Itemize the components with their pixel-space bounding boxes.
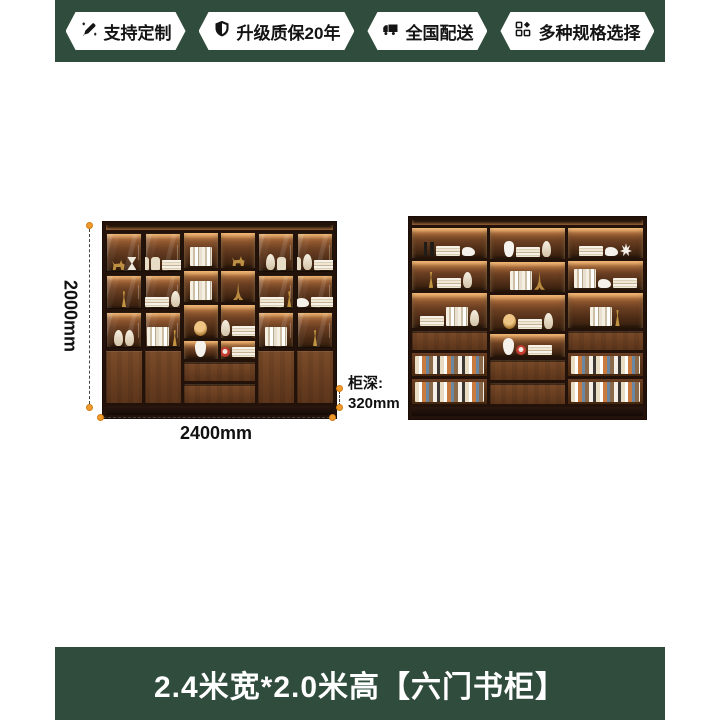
books-shelf-cell [412, 379, 487, 405]
vase-item [463, 272, 472, 288]
clock-item [516, 345, 526, 355]
trophy-item [312, 330, 319, 346]
vase-item [221, 320, 230, 336]
bird-item [462, 247, 475, 256]
canister-item [277, 257, 286, 270]
glass-door-cell [258, 233, 294, 272]
shelf-cell [568, 261, 643, 290]
books-shelf-cell [568, 379, 643, 405]
badge-label: 多种规格选择 [538, 19, 640, 44]
deer-item [231, 256, 245, 266]
bookcase-closed [106, 225, 333, 415]
clock-item [221, 347, 230, 357]
layout-box [145, 233, 181, 404]
canister-item [145, 257, 149, 270]
bird-item [605, 247, 618, 256]
vase-item [171, 291, 180, 307]
badge-warranty: 升级质保20年 [199, 12, 355, 50]
candle-item [424, 242, 434, 256]
top-light-strip [412, 220, 643, 225]
door-panel [297, 351, 333, 403]
vase-item [125, 330, 134, 346]
drawer-front [490, 360, 565, 380]
drawer-front [184, 362, 256, 381]
vbooks-item [590, 307, 612, 326]
height-dimension-label: 2000mm [60, 280, 81, 352]
glass-door-cell [106, 275, 142, 309]
badge-label: 升级质保20年 [237, 19, 341, 44]
glass-door-cell [145, 275, 181, 309]
shelf-cell [184, 305, 218, 338]
layout-box [490, 228, 565, 405]
width-dimension-label: 2400mm [180, 423, 252, 444]
shield-icon [213, 20, 231, 43]
hbooks-item [232, 326, 256, 336]
shelf-cell [490, 334, 565, 357]
books-shelf-cell [568, 353, 643, 375]
shelf-cell [221, 233, 255, 268]
layout-box [184, 233, 218, 338]
bird-item [297, 298, 308, 307]
hbooks-item [613, 278, 637, 288]
canister-item [151, 257, 160, 270]
badge-delivery: 全国配送 [367, 12, 487, 50]
vbooks-item [147, 327, 169, 346]
vbooks-item [190, 247, 212, 266]
truck-icon [381, 20, 399, 43]
vase-item [114, 330, 123, 346]
bookcase-open [412, 220, 643, 416]
tower-item [534, 272, 545, 290]
vase-item [542, 241, 551, 257]
shelf-cell [412, 228, 487, 258]
hbooks-item [579, 246, 603, 256]
hourglass-item [127, 257, 136, 270]
hbooks-item [232, 347, 255, 357]
width-dimension-line [103, 417, 330, 418]
hbooks-item [528, 345, 552, 355]
vase-item [266, 254, 275, 270]
door-panel [258, 351, 294, 403]
layout-box [106, 233, 333, 404]
grid-icon [514, 20, 532, 43]
layout-box [184, 341, 256, 359]
coral-item [620, 243, 632, 256]
product-title: 2.4米宽*2.0米高【六门书柜】 [154, 662, 566, 706]
shelf-cell [221, 305, 255, 338]
hbooks-item [162, 260, 181, 270]
vbooks-item [190, 281, 212, 300]
glass-door-cell [106, 312, 142, 348]
shelf-cell [568, 228, 643, 258]
shelf-cell [568, 293, 643, 328]
hbooks-item [311, 297, 333, 307]
door-panel [106, 351, 142, 403]
trophy-item [428, 272, 435, 288]
vbooks-item [446, 307, 468, 326]
trophy-item [120, 291, 127, 307]
layout-box [412, 228, 643, 405]
badge-custom-support: 支持定制 [66, 12, 186, 50]
layout-box [106, 233, 142, 404]
drawer-front [490, 383, 565, 405]
deer-item [111, 260, 125, 270]
layout-box [258, 233, 294, 404]
vase-item [303, 254, 312, 270]
shelf-cell [412, 293, 487, 328]
hbooks-item [420, 316, 444, 326]
feature-badges-bar: 支持定制 升级质保20年 全国配送 多种规格选择 [55, 0, 665, 62]
vbooks-item [510, 271, 532, 290]
drawer-front [184, 384, 256, 403]
badge-label: 全国配送 [405, 19, 473, 44]
depth-label-line2: 320mm [348, 394, 400, 414]
product-detail-image: 支持定制 升级质保20年 全国配送 多种规格选择 2000mm [0, 0, 720, 720]
layout-box [412, 228, 487, 405]
shelf-cell [184, 271, 218, 302]
books-shelf-cell [412, 353, 487, 375]
dimension-endpoint-dot [86, 404, 93, 411]
shelf-cell [221, 341, 255, 359]
bird-item [598, 279, 611, 288]
hbooks-item [314, 260, 333, 270]
drawer-front [412, 331, 487, 350]
badge-label: 支持定制 [104, 19, 172, 44]
product-title-banner: 2.4米宽*2.0米高【六门书柜】 [55, 647, 665, 720]
dimension-endpoint-dot [329, 414, 336, 421]
plinth [106, 406, 333, 415]
drawer-front [568, 331, 643, 350]
dimension-endpoint-dot [97, 414, 104, 421]
depth-label-line1: 柜深: [348, 374, 400, 394]
shelf-cell [412, 261, 487, 290]
shelf-cell [184, 233, 218, 268]
vase-item [544, 313, 553, 329]
dimension-endpoint-dot [86, 222, 93, 229]
vbooks-item [265, 327, 287, 346]
hbooks-item [516, 247, 540, 257]
top-light-strip [106, 225, 333, 230]
layout-box [184, 233, 256, 338]
door-panel [145, 351, 181, 403]
badge-spec-options: 多种规格选择 [500, 12, 654, 50]
layout-box [221, 233, 255, 338]
tower-item [233, 282, 244, 300]
depth-dimension-label: 柜深: 320mm [348, 374, 400, 413]
shelf-cell [221, 271, 255, 302]
canister-item [297, 257, 301, 270]
trophy-item [614, 310, 621, 326]
glass-door-cell [145, 233, 181, 272]
shelf-cell [184, 341, 218, 359]
glass-door-cell [297, 312, 333, 348]
bookcase-open-photo [409, 217, 646, 419]
vbooks-item [574, 269, 596, 288]
glass-door-cell [258, 312, 294, 348]
shelf-cell [490, 295, 565, 331]
hbooks-item [145, 297, 169, 307]
plinth [412, 407, 643, 416]
trophy-item [171, 330, 178, 346]
vase-item [470, 310, 479, 326]
hbooks-item [436, 246, 460, 256]
height-dimension-line [89, 229, 90, 404]
glass-door-cell [106, 233, 142, 272]
doll-item [503, 338, 514, 355]
trophy-item [286, 291, 293, 307]
layout-box [184, 233, 256, 404]
hbooks-item [518, 319, 542, 329]
hbooks-item [260, 297, 284, 307]
dimension-endpoint-dot [336, 404, 343, 411]
hbooks-item [437, 278, 461, 288]
doll-item [195, 341, 206, 357]
pencil-icon [80, 20, 98, 43]
layout-box [568, 228, 643, 405]
globe-item [194, 321, 207, 336]
glass-door-cell [145, 312, 181, 348]
dimension-endpoint-dot [336, 385, 343, 392]
glass-door-cell [297, 233, 333, 272]
layout-box [297, 233, 333, 404]
globe-item [503, 314, 516, 329]
glass-door-cell [297, 275, 333, 309]
shelf-cell [490, 262, 565, 292]
bookcase-closed-photo [103, 222, 336, 418]
glass-door-cell [258, 275, 294, 309]
shelf-cell [490, 228, 565, 259]
astro-item [504, 241, 514, 257]
